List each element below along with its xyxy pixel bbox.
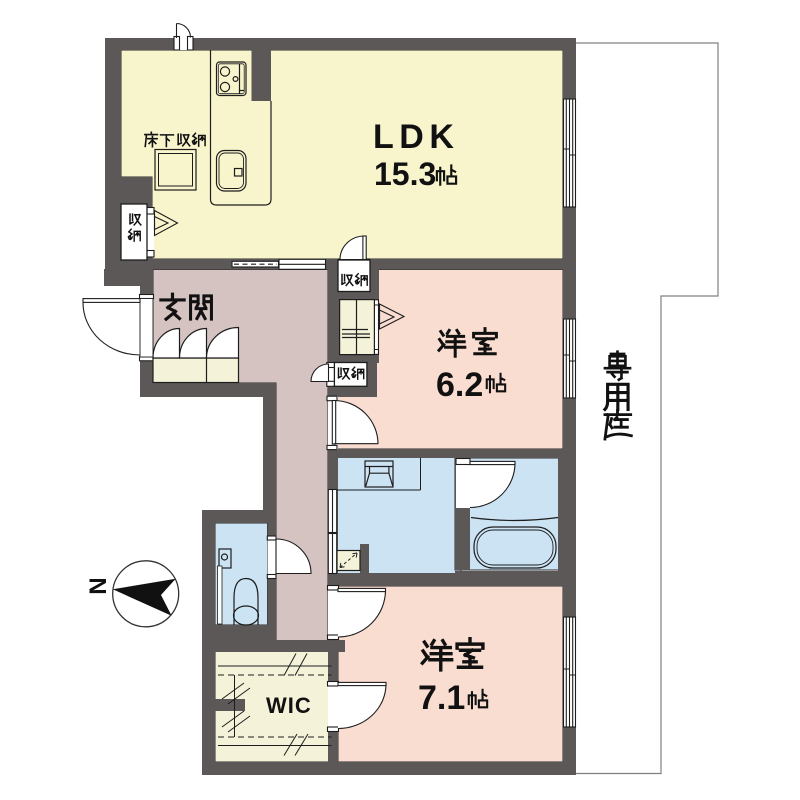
svg-text:7.1: 7.1 <box>418 679 465 717</box>
svg-text:15.3: 15.3 <box>374 156 436 192</box>
svg-text:6.2: 6.2 <box>436 366 483 404</box>
svg-text:N: N <box>84 577 111 594</box>
svg-text:WIC: WIC <box>266 693 312 718</box>
svg-text:LDK: LDK <box>373 118 459 156</box>
